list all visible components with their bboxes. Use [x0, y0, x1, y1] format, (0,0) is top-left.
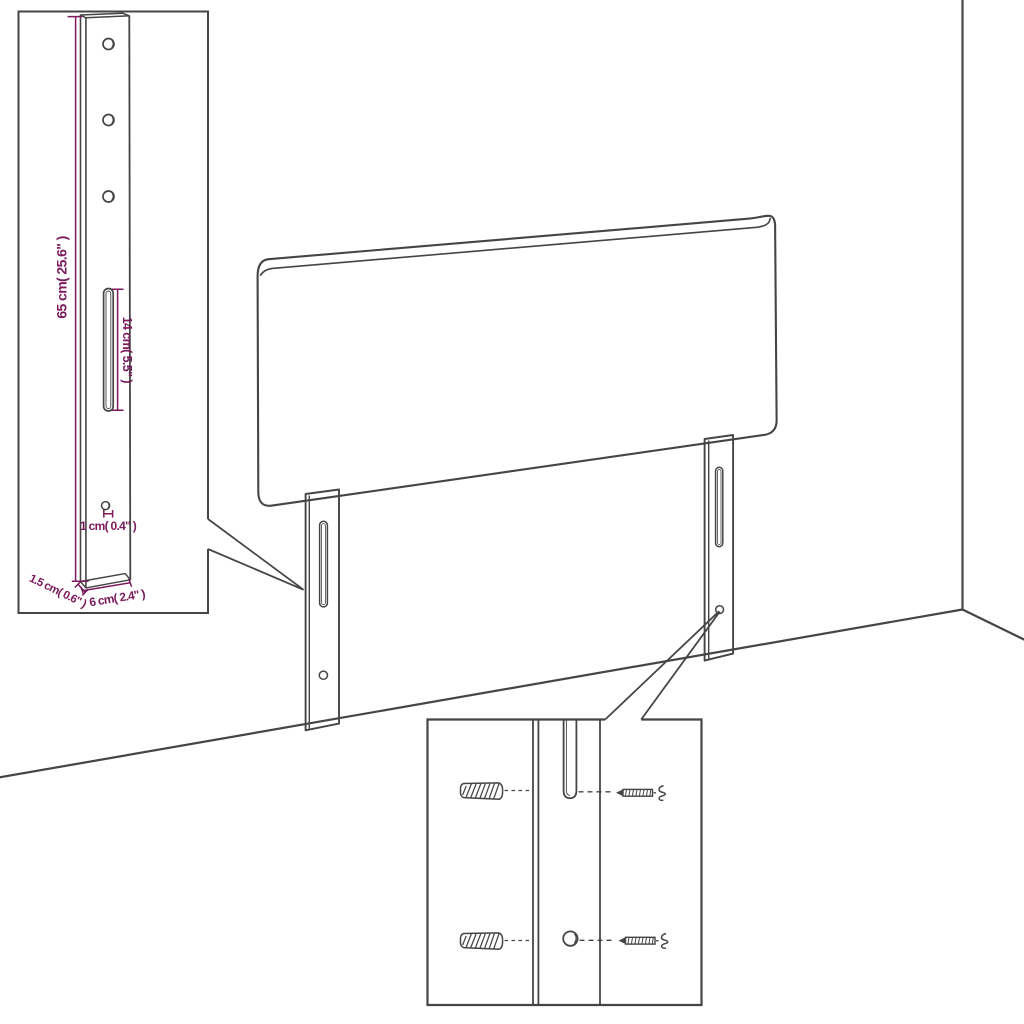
bracket-right-edge	[129, 16, 130, 580]
left-leg-slot	[320, 521, 328, 607]
callout-right-leg	[605, 611, 720, 719]
callout-left-lines	[208, 519, 304, 590]
callout-right-lines	[605, 611, 720, 719]
dimension-label-1cm: 1 cm( 0.4" )	[80, 519, 137, 533]
right-leg-slot-outline	[716, 467, 723, 546]
left-leg-outline	[306, 490, 339, 731]
dimension-label-65cm: 65 cm( 25.6" )	[54, 236, 70, 318]
right-leg-slot-inner-line	[717, 470, 721, 545]
headboard-top-edge-inner-line	[260, 218, 770, 276]
left-leg-slot-inner-line	[322, 524, 326, 605]
right-leg-slot	[716, 467, 723, 546]
headboard	[258, 216, 777, 731]
callout-left-leg	[208, 519, 304, 590]
screw-mounting-inset	[428, 720, 702, 1006]
left-leg-hole-outline	[319, 671, 327, 679]
left-leg-hole	[319, 671, 327, 679]
diagram-svg: 65 cm( 25.6" ) 14 cm( 5.5" ) 1 cm( 0.4" …	[0, 0, 1024, 1024]
headboard-left-leg	[306, 490, 339, 731]
floor-line-right	[963, 610, 1024, 642]
headboard-assembly-diagram: 65 cm( 25.6" ) 14 cm( 5.5" ) 1 cm( 0.4" …	[0, 0, 1024, 1024]
dimension-label-14cm: 14 cm( 5.5" )	[120, 317, 134, 384]
bracket-dimension-inset: 65 cm( 25.6" ) 14 cm( 5.5" ) 1 cm( 0.4" …	[19, 12, 209, 614]
headboard-panel	[258, 216, 777, 506]
left-leg-slot-outline	[320, 521, 328, 607]
